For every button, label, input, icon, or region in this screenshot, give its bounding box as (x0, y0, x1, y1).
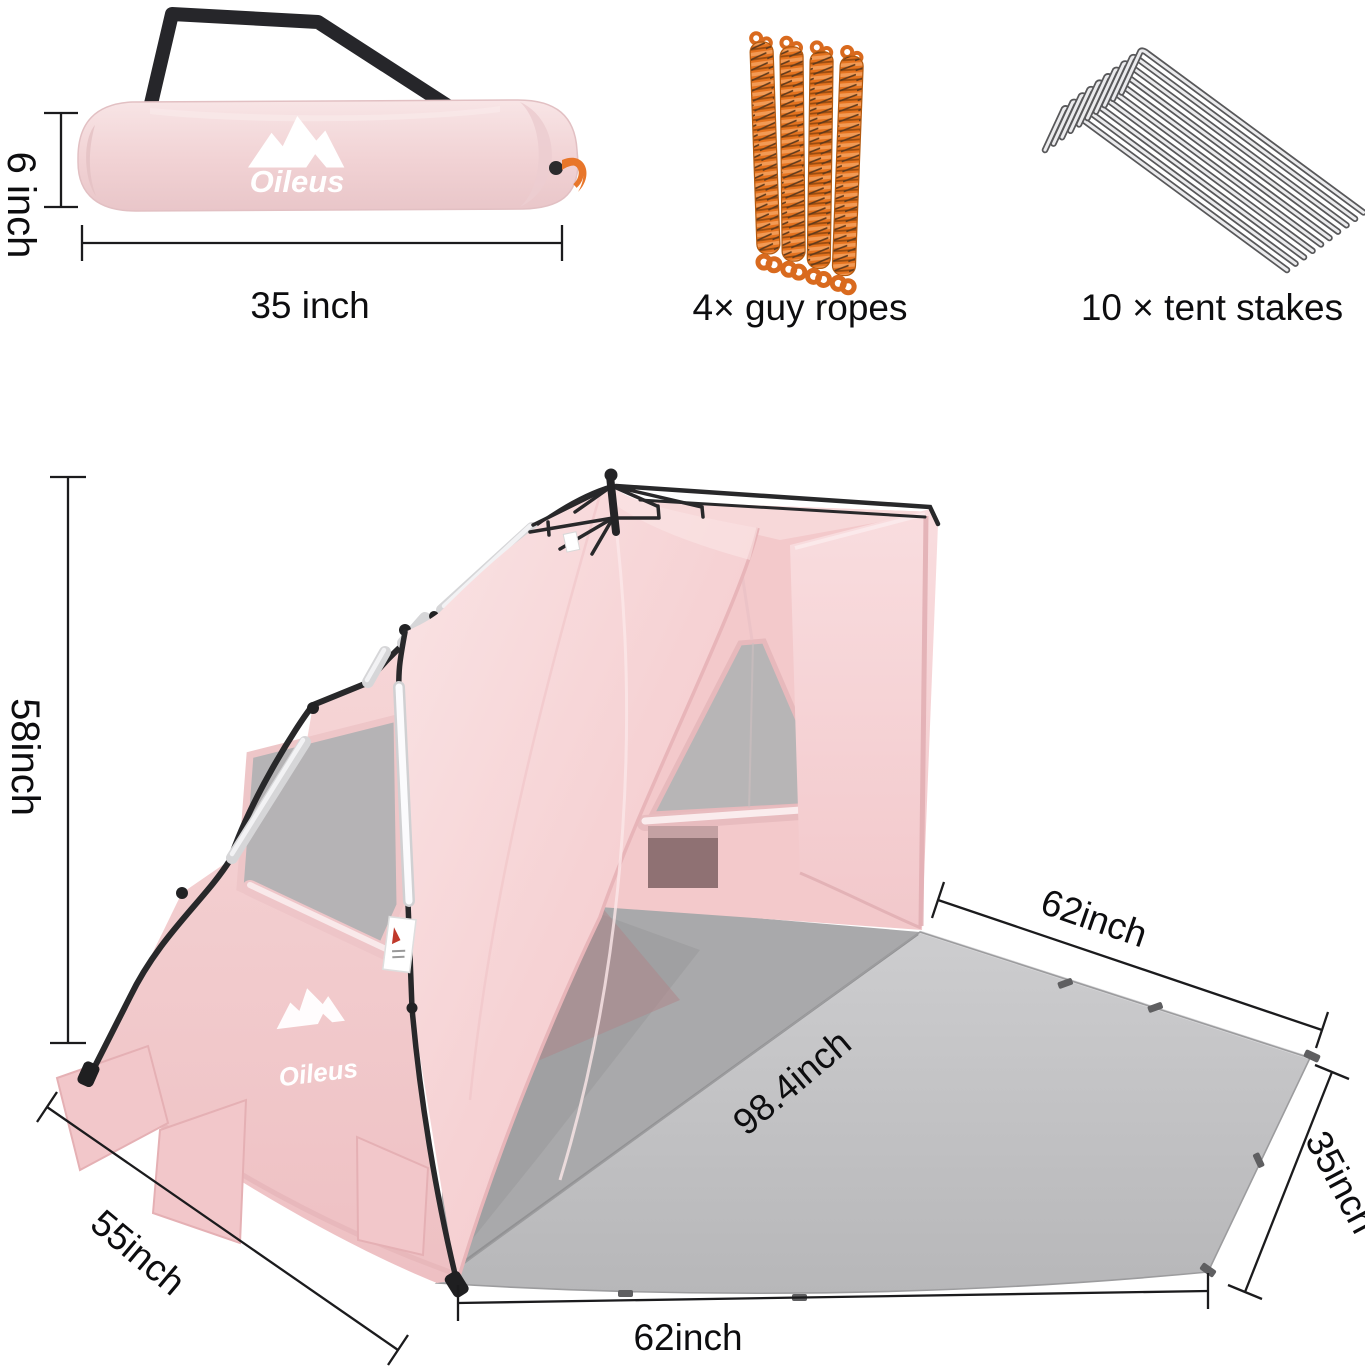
tent-back-wall (790, 509, 938, 928)
tent-height-dimension: 58inch (3, 477, 86, 1043)
bag-height-label: 6 inch (0, 152, 43, 259)
tent-stakes-label: 10 × tent stakes (1081, 287, 1343, 328)
product-dimension-figure: Oileus 6 inch 35 inch 4× guy ropes 10 × … (0, 0, 1365, 1367)
guy-rope-icon (749, 33, 780, 272)
carry-bag-illustration: Oileus 6 inch 35 inch (0, 14, 587, 326)
tent-stakes-illustration: 10 × tent stakes (1045, 51, 1364, 328)
tent-infographic-canvas: Oileus 6 inch 35 inch 4× guy ropes 10 × … (0, 0, 1365, 1367)
bag-brand-text: Oileus (250, 164, 345, 199)
guy-rope-icons (749, 33, 863, 293)
bag-width-dimension: 35 inch (82, 225, 562, 326)
guy-ropes-label: 4× guy ropes (693, 287, 908, 328)
guy-rope-icon (807, 42, 833, 285)
tent-illustration: Oileus (3, 469, 1365, 1366)
guy-rope-icon (780, 38, 806, 279)
bag-width-label: 35 inch (250, 285, 369, 326)
product-tag (383, 917, 416, 973)
tent-back-width-label: 62inch (1036, 881, 1152, 955)
guy-rope-icon (831, 47, 863, 293)
tent-floor-depth-label: 35inch (1297, 1124, 1365, 1240)
bag-height-dimension: 6 inch (0, 113, 78, 258)
tent-height-label: 58inch (3, 698, 47, 816)
guy-ropes-illustration: 4× guy ropes (693, 33, 908, 328)
shoulder-strap (150, 14, 448, 108)
tent-front-width-label: 62inch (633, 1317, 742, 1358)
tent-stake-icons (1045, 51, 1364, 270)
